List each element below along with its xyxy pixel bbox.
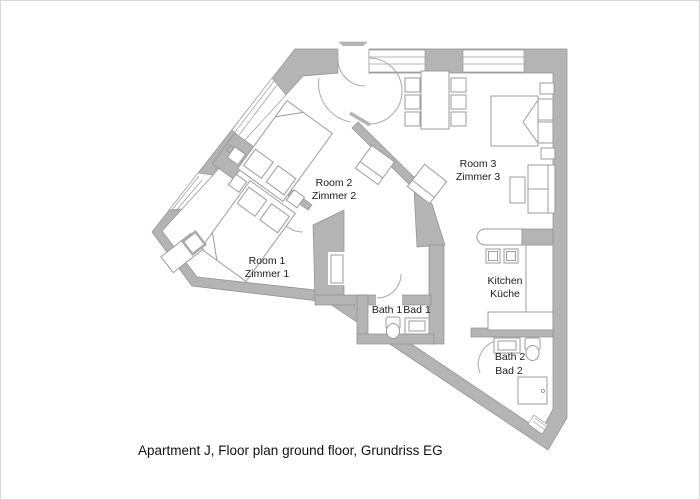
- room3-label-de: Zimmer 3: [456, 171, 500, 183]
- kitchen-counter-south: [488, 312, 553, 330]
- plan-caption: Apartment J, Floor plan ground floor, Gr…: [138, 443, 443, 458]
- kitchen-peninsula: [477, 229, 522, 245]
- room3-label: Room 3: [460, 158, 497, 170]
- kitchen-label-de: Küche: [490, 288, 520, 300]
- room3-sofa: [528, 165, 555, 213]
- room1-label: Room 1: [249, 255, 286, 267]
- floor-plan-page: Room 1 Zimmer 1 Room 2 Zimmer 2 Room 3 Z…: [0, 0, 700, 500]
- room1-label-de: Zimmer 1: [245, 268, 289, 280]
- room3-armchair: [407, 164, 446, 203]
- wall-kitchen-north: [519, 229, 553, 245]
- kitchen-counter-east: [526, 245, 553, 314]
- bath1-label-de: Bad 1: [403, 304, 431, 316]
- window-northwest-lower: [169, 173, 213, 212]
- bath2-shower: [518, 377, 547, 404]
- window-top-left: [369, 50, 425, 72]
- room2-armchair: [355, 145, 394, 184]
- bath2-label: Bath 2: [495, 351, 526, 363]
- window-top-right: [463, 50, 524, 72]
- room3-coffee-table: [510, 177, 525, 203]
- floor-plan-drawing: Room 1 Zimmer 1 Room 2 Zimmer 2 Room 3 Z…: [1, 1, 700, 500]
- bath2-toilet: [526, 346, 539, 361]
- bath2-door-arc: [478, 341, 496, 373]
- bath1-toilet: [387, 324, 400, 339]
- vestibule-door-arc-2: [319, 78, 351, 122]
- wall-kitchen-west: [429, 245, 444, 344]
- bath1-label: Bath 1: [372, 304, 403, 316]
- room1-door-leaf: [331, 255, 343, 283]
- vestibule-door-leaf: [350, 113, 370, 125]
- entrance-opening: [338, 46, 369, 75]
- dining-table: [421, 71, 449, 129]
- kitchen-label: Kitchen: [487, 275, 522, 287]
- room3-dining-set: [405, 71, 466, 129]
- room3-bed: [491, 83, 555, 159]
- room2-label: Room 2: [316, 177, 353, 189]
- bath2-label-de: Bad 2: [495, 365, 523, 377]
- room2-label-de: Zimmer 2: [312, 190, 356, 202]
